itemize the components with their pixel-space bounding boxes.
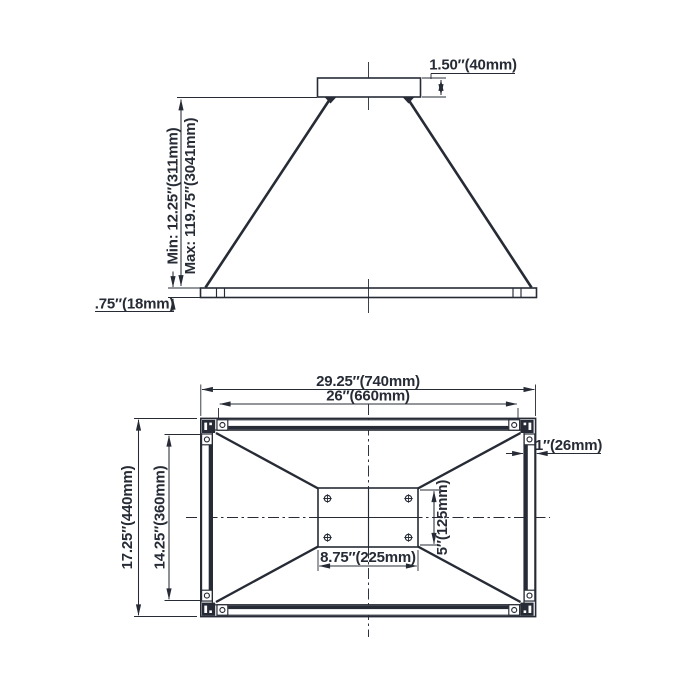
plan-view: 29.25″(740mm) 26″(660mm) 17.25″(440mm) 1… xyxy=(119,373,602,637)
dim-frame-profile-height: .75″(18mm) xyxy=(95,272,201,313)
canopy-plate xyxy=(318,488,418,547)
dim-frame-profile-label: .75″(18mm) xyxy=(95,296,175,313)
plan-cable-top-left xyxy=(216,433,320,490)
corner-block-bottom-right xyxy=(520,603,533,616)
plan-cable-bottom-right xyxy=(416,546,521,603)
drawing-sheet: 1.50″(40mm) Min: 12.25″(311mm) Max: 119.… xyxy=(0,0,700,700)
corner-block-bottom-left xyxy=(202,603,215,616)
dim-canopy-width-label: 8.75″(225mm) xyxy=(320,549,416,566)
dim-canopy-depth: 5″(125mm) xyxy=(420,480,451,556)
dim-canopy-depth-label: 5″(125mm) xyxy=(434,480,451,556)
dim-canopy-height: 1.50″(40mm) xyxy=(422,57,517,98)
dim-inner-width-label: 26″(660mm) xyxy=(326,388,410,405)
led-rail-bottom xyxy=(217,605,520,615)
side-view: 1.50″(40mm) Min: 12.25″(311mm) Max: 119.… xyxy=(95,57,537,314)
led-rail-right xyxy=(524,434,535,601)
dimension-diagram: 1.50″(40mm) Min: 12.25″(311mm) Max: 119.… xyxy=(0,0,700,700)
dim-suspension-height: Min: 12.25″(311mm) Max: 119.75″(3041mm) xyxy=(165,98,318,287)
dim-frame-thickness-label: 1″(26mm) xyxy=(535,437,602,454)
corner-block-top-left xyxy=(202,420,215,433)
dim-canopy-width: 8.75″(225mm) xyxy=(318,549,418,571)
dim-inner-depth-label: 14.25″(360mm) xyxy=(152,465,169,569)
frame-bar xyxy=(201,279,537,313)
canopy-outline xyxy=(318,78,421,97)
dim-frame-thickness: 1″(26mm) xyxy=(506,437,602,454)
dim-outer-depth-label: 17.25″(440mm) xyxy=(119,465,136,569)
suspension-cable-left xyxy=(206,99,331,288)
dim-max-height-label: Max: 119.75″(3041mm) xyxy=(182,117,199,274)
led-rail-left xyxy=(202,434,213,601)
plan-cable-bottom-left xyxy=(216,546,320,603)
dim-min-height-label: Min: 12.25″(311mm) xyxy=(165,127,182,264)
suspension-cable-right xyxy=(408,99,532,288)
led-rail-top xyxy=(217,420,520,430)
plan-cable-top-right xyxy=(416,433,521,490)
dim-canopy-height-label: 1.50″(40mm) xyxy=(429,57,517,74)
corner-block-top-right xyxy=(520,420,533,433)
